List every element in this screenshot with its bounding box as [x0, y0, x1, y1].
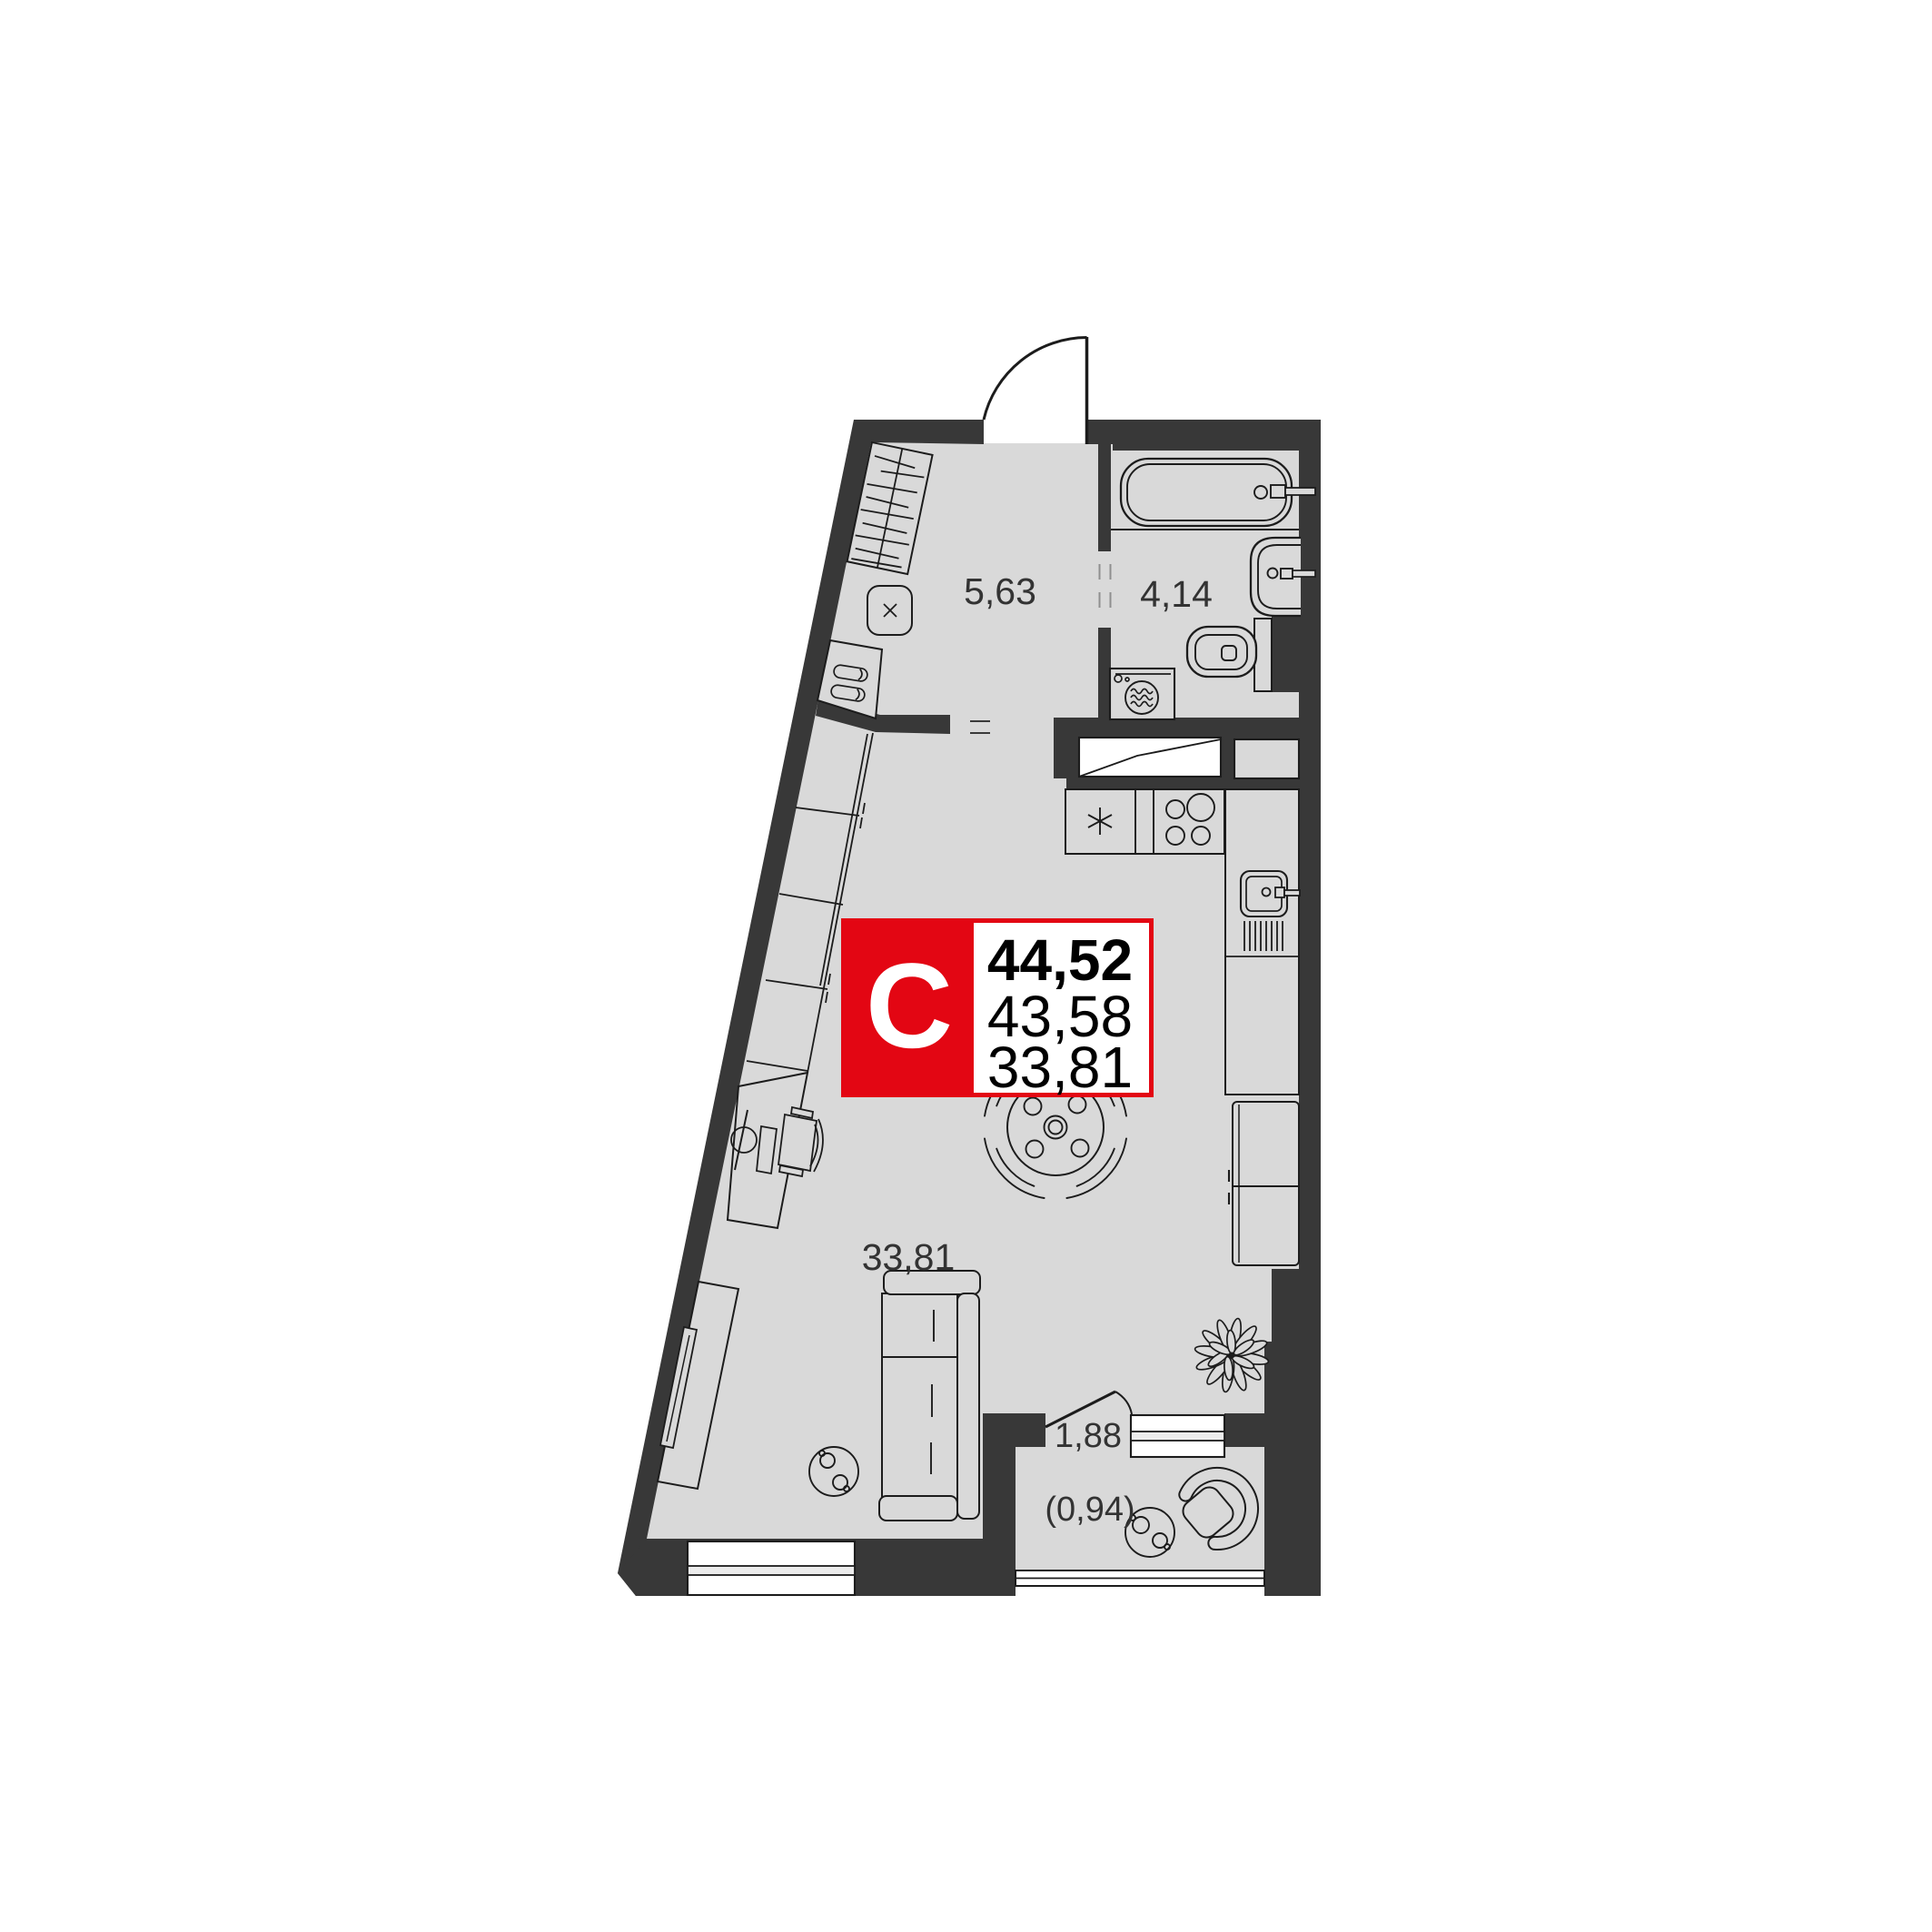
svg-text:C: C [866, 939, 953, 1074]
svg-text:(0,94): (0,94) [1045, 1491, 1134, 1529]
svg-text:33,81: 33,81 [987, 1035, 1133, 1100]
svg-text:4,14: 4,14 [1140, 573, 1213, 615]
svg-text:1,88: 1,88 [1055, 1417, 1122, 1455]
svg-text:33,81: 33,81 [862, 1236, 956, 1278]
svg-text:5,63: 5,63 [964, 570, 1036, 612]
